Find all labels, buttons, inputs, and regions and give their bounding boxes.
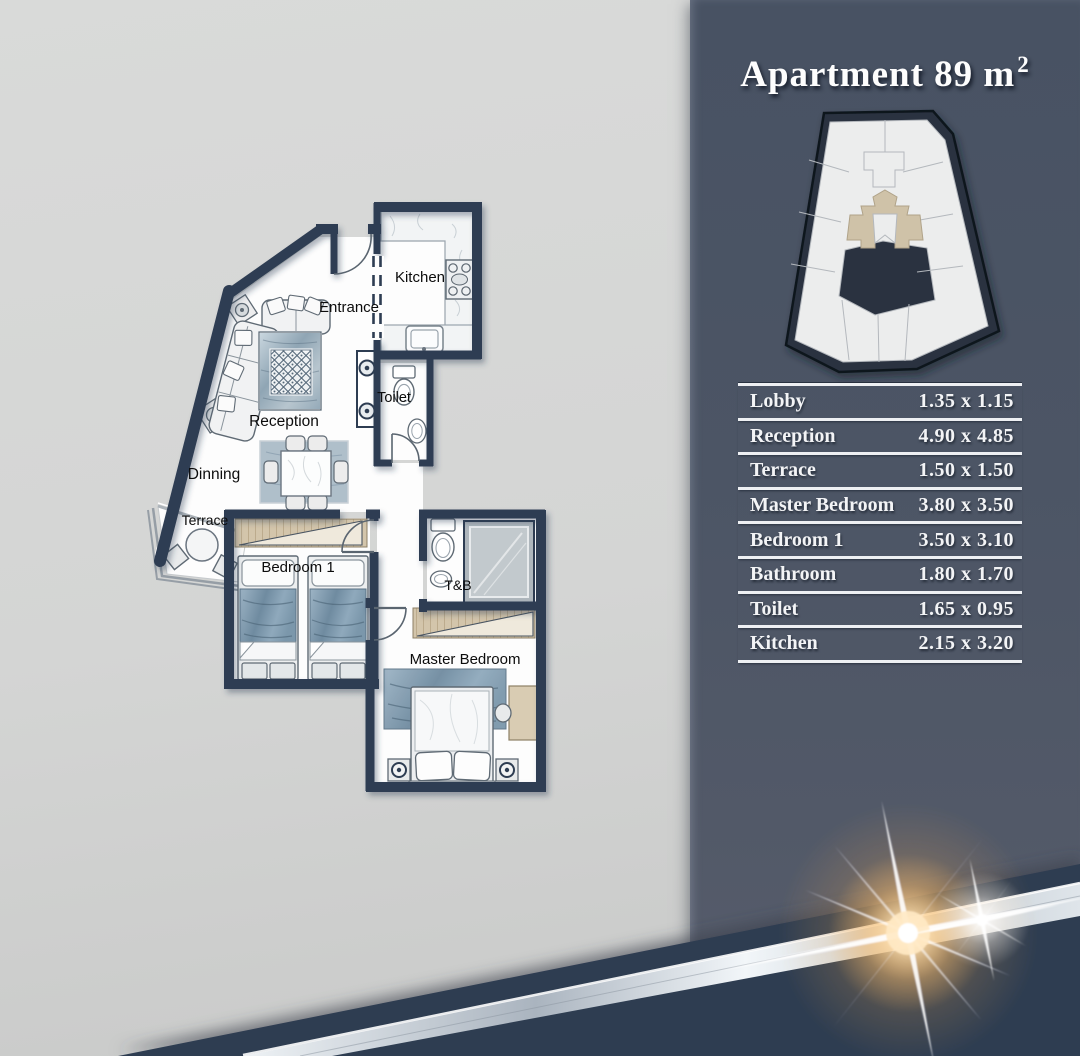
sidebar: Apartment 89 m2	[690, 0, 1080, 1056]
room-labels: Kitchen Entrance Toilet Reception Dinnin…	[182, 269, 521, 668]
master-bed	[409, 687, 495, 788]
table-row: Master Bedroom3.80 x 3.50	[738, 490, 1022, 525]
label-terrace: Terrace	[182, 512, 229, 528]
title-text: Apartment 89 m	[740, 54, 1015, 95]
row-size: 1.50 x 1.50	[919, 459, 1023, 482]
row-size: 3.50 x 3.10	[919, 529, 1023, 552]
terrace-railing	[148, 503, 247, 590]
sink-icon-tb	[431, 571, 452, 587]
dining-set	[260, 436, 348, 510]
row-label: Toilet	[738, 598, 798, 621]
room-floors	[154, 211, 537, 783]
building-footprint-diagram	[772, 98, 1012, 383]
row-size: 3.80 x 3.50	[919, 494, 1023, 517]
title-superscript: 2	[1017, 52, 1030, 77]
toilet-room-fixtures	[393, 366, 426, 443]
row-label: Master Bedroom	[738, 494, 894, 517]
label-reception: Reception	[249, 413, 319, 430]
row-label: Lobby	[738, 390, 806, 413]
table-row: Reception4.90 x 4.85	[738, 421, 1022, 456]
shower-icon	[464, 521, 534, 603]
row-size: 1.80 x 1.70	[919, 563, 1023, 586]
row-label: Bedroom 1	[738, 529, 844, 552]
dashed-opening	[369, 256, 384, 338]
label-kitchen: Kitchen	[395, 269, 445, 286]
table-row: Kitchen2.15 x 3.20	[738, 628, 1022, 663]
room-dimensions-table: Lobby1.35 x 1.15 Reception4.90 x 4.85 Te…	[738, 383, 1022, 663]
reception-sofa-top	[262, 295, 330, 334]
row-size: 2.15 x 3.20	[919, 632, 1023, 655]
row-size: 1.35 x 1.15	[919, 390, 1023, 413]
table-row: Lobby1.35 x 1.15	[738, 386, 1022, 421]
stove-icon	[446, 260, 473, 299]
kitchen-sink-icon	[406, 326, 443, 352]
label-dinning: Dinning	[188, 466, 241, 483]
bedroom1-bed-2	[308, 556, 368, 680]
table-row: Terrace1.50 x 1.50	[738, 455, 1022, 490]
bedroom1-closet	[235, 519, 367, 547]
label-bedroom1: Bedroom 1	[261, 559, 334, 576]
row-label: Reception	[738, 425, 836, 448]
kitchen-counters	[381, 211, 473, 353]
master-desk	[495, 686, 537, 740]
row-label: Kitchen	[738, 632, 818, 655]
label-toilet: Toilet	[377, 390, 411, 406]
table-row: Bathroom1.80 x 1.70	[738, 559, 1022, 594]
table-row: Toilet1.65 x 0.95	[738, 594, 1022, 629]
page-title: Apartment 89 m2	[690, 52, 1080, 96]
row-label: Terrace	[738, 459, 816, 482]
master-rug	[384, 669, 506, 729]
reception-sofa-long	[207, 319, 281, 443]
bedroom1-bed	[238, 556, 298, 680]
table-row: Bedroom 13.50 x 3.10	[738, 524, 1022, 559]
row-size: 4.90 x 4.85	[919, 425, 1023, 448]
label-master: Master Bedroom	[410, 651, 521, 668]
reception-rug	[259, 332, 321, 410]
master-closet	[413, 608, 535, 638]
hall-pilaster	[357, 351, 377, 427]
walls	[160, 202, 546, 791]
toilet-icon-tb	[431, 519, 455, 561]
label-entrance: Entrance	[319, 299, 379, 316]
row-label: Bathroom	[738, 563, 836, 586]
door-swings	[334, 234, 419, 640]
label-tb: T&B	[444, 577, 471, 593]
master-nightstands	[388, 759, 518, 781]
floorplan: Kitchen Entrance Toilet Reception Dinnin…	[0, 0, 690, 1056]
terrace-furniture	[163, 529, 237, 579]
reception-side-table-lamp	[196, 295, 257, 433]
row-size: 1.65 x 0.95	[919, 598, 1023, 621]
apartment-brochure-page: Kitchen Entrance Toilet Reception Dinnin…	[0, 0, 1080, 1056]
